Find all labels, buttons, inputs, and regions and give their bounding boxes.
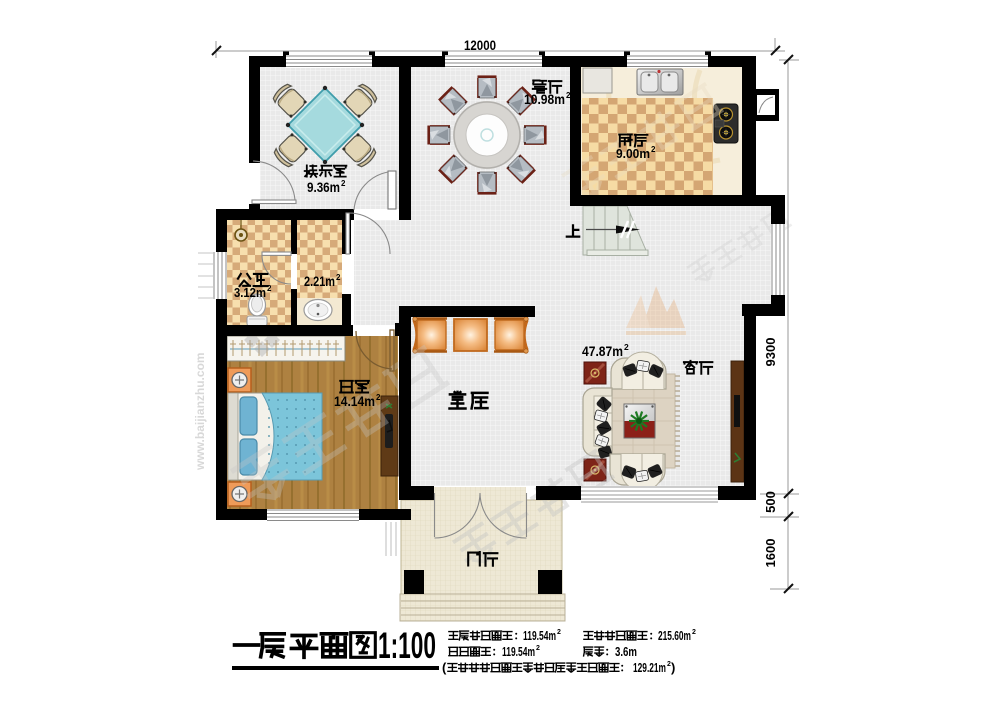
svg-text:9.00m: 9.00m <box>616 146 650 161</box>
svg-text:500: 500 <box>763 491 778 513</box>
svg-text:9300: 9300 <box>763 338 778 367</box>
svg-text:3.6m: 3.6m <box>615 645 637 659</box>
svg-text:2: 2 <box>566 91 571 100</box>
svg-text:1600: 1600 <box>763 539 778 568</box>
svg-text:9.36m: 9.36m <box>307 180 340 195</box>
svg-text:12000: 12000 <box>464 37 496 53</box>
svg-text:215.60m: 215.60m <box>658 629 691 643</box>
svg-text:www.baijianzhu.com: www.baijianzhu.com <box>193 352 207 471</box>
svg-text:2: 2 <box>651 145 656 154</box>
svg-text:129.21m: 129.21m <box>633 661 666 675</box>
svg-text:3.12m: 3.12m <box>234 285 266 300</box>
svg-text:119.54m: 119.54m <box>523 629 556 643</box>
svg-text:2: 2 <box>536 645 540 652</box>
svg-text:2: 2 <box>692 629 696 636</box>
svg-text:2: 2 <box>341 179 346 188</box>
svg-text:(: ( <box>442 660 447 675</box>
svg-text:): ) <box>671 660 675 675</box>
svg-text:10.98m: 10.98m <box>524 92 565 107</box>
svg-text:119.54m: 119.54m <box>502 645 535 659</box>
svg-text:2: 2 <box>376 393 381 402</box>
svg-text:2.21m: 2.21m <box>304 274 335 289</box>
svg-text:2: 2 <box>624 342 629 352</box>
svg-text:47.87m: 47.87m <box>582 343 623 359</box>
svg-text:2: 2 <box>267 284 272 293</box>
svg-text:14.14m: 14.14m <box>334 394 375 409</box>
svg-text:1:100: 1:100 <box>378 625 436 666</box>
svg-text:2: 2 <box>336 273 341 282</box>
svg-text:2: 2 <box>557 629 561 636</box>
